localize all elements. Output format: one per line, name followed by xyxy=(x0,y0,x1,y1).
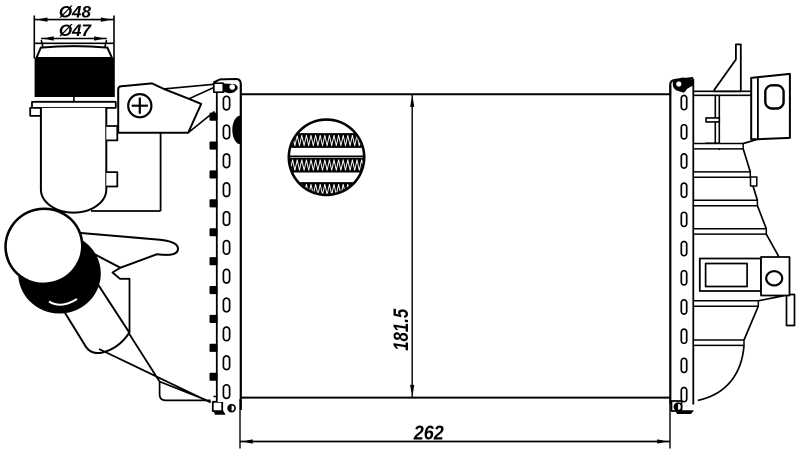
svg-text:Ø47: Ø47 xyxy=(59,21,93,40)
svg-text:Ø48: Ø48 xyxy=(59,2,92,21)
svg-text:181.5: 181.5 xyxy=(390,309,413,351)
svg-text:262: 262 xyxy=(413,423,444,445)
